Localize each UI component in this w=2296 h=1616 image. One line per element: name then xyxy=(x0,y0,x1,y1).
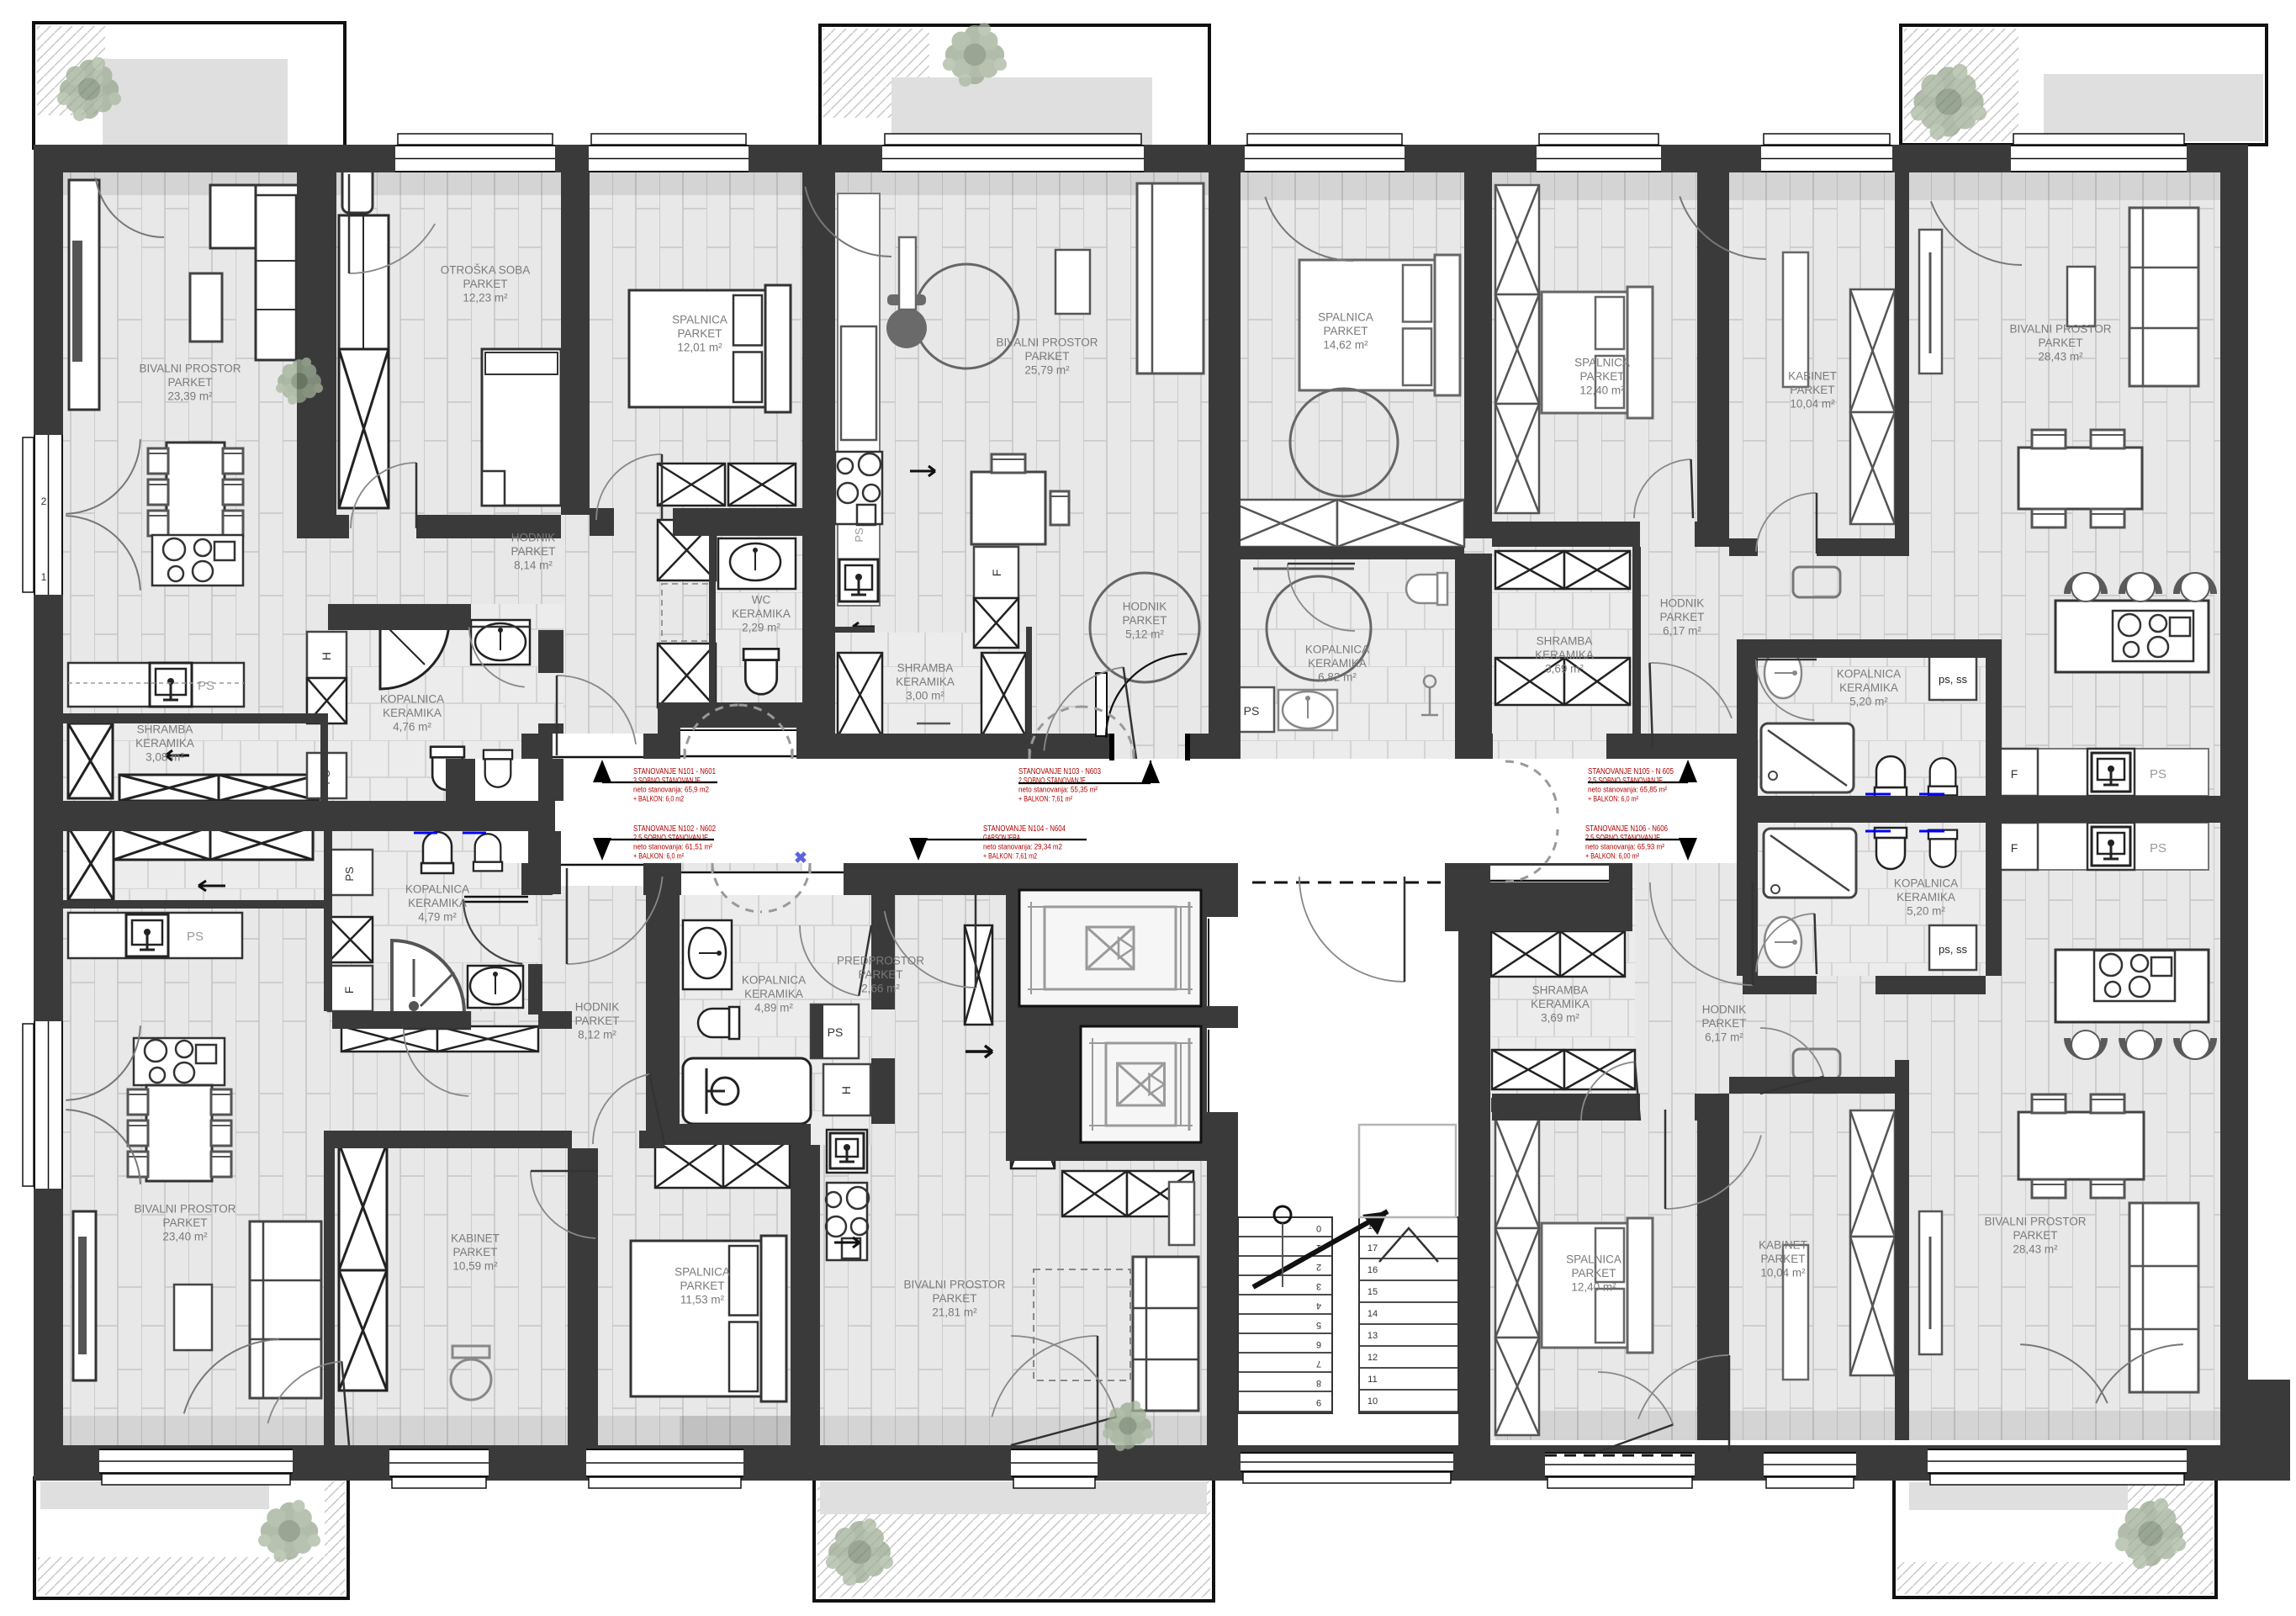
svg-text:PS: PS xyxy=(187,930,204,944)
svg-text:PARKET: PARKET xyxy=(1122,614,1167,627)
svg-text:3,69 m²: 3,69 m² xyxy=(1541,1012,1579,1025)
svg-text:PS: PS xyxy=(343,866,356,882)
svg-text:+ BALKON: 7,61 m2: + BALKON: 7,61 m2 xyxy=(983,851,1037,860)
svg-text:0: 0 xyxy=(1316,1223,1321,1233)
svg-text:PARKET: PARKET xyxy=(167,376,212,389)
svg-text:3,00 m²: 3,00 m² xyxy=(906,690,944,702)
svg-text:H: H xyxy=(839,1086,853,1094)
svg-text:10,59 m²: 10,59 m² xyxy=(452,1260,498,1273)
svg-text:+ BALKON: 6,0 m²: + BALKON: 6,0 m² xyxy=(633,851,684,860)
svg-text:2,66 m²: 2,66 m² xyxy=(861,983,900,995)
svg-text:3,08 m²: 3,08 m² xyxy=(145,751,184,764)
svg-text:BIVALNI PROSTOR: BIVALNI PROSTOR xyxy=(139,363,241,375)
svg-text:PS: PS xyxy=(2150,767,2166,782)
svg-text:16: 16 xyxy=(1368,1265,1378,1275)
svg-text:10,04 m²: 10,04 m² xyxy=(1760,1267,1806,1280)
svg-text:neto stanovanja: 55,35 m²: neto stanovanja: 55,35 m² xyxy=(1018,786,1098,794)
svg-text:8,12 m²: 8,12 m² xyxy=(578,1029,616,1041)
svg-text:6: 6 xyxy=(1316,1339,1321,1349)
svg-text:28,43 m²: 28,43 m² xyxy=(2013,1243,2058,1256)
svg-text:PS: PS xyxy=(853,527,865,543)
svg-text:12,40 m²: 12,40 m² xyxy=(1579,384,1625,397)
svg-text:+ BALKON: 6,0 m2: + BALKON: 6,0 m2 xyxy=(633,794,684,803)
svg-text:PARKET: PARKET xyxy=(858,968,902,981)
svg-text:neto stanovanja: 61,51 m²: neto stanovanja: 61,51 m² xyxy=(633,843,712,851)
svg-text:9: 9 xyxy=(1316,1397,1321,1407)
svg-text:17: 17 xyxy=(1368,1243,1378,1253)
svg-text:2: 2 xyxy=(41,495,47,507)
svg-text:2,5 SOBNO STANOVANJE: 2,5 SOBNO STANOVANJE xyxy=(1585,833,1660,843)
svg-text:F: F xyxy=(990,570,1003,577)
svg-text:7: 7 xyxy=(1316,1359,1321,1369)
svg-text:KERAMIKA: KERAMIKA xyxy=(1308,657,1367,670)
svg-text:PARKET: PARKET xyxy=(1579,370,1624,383)
svg-text:8,14 m²: 8,14 m² xyxy=(514,559,553,572)
svg-text:KERAMIKA: KERAMIKA xyxy=(135,737,194,750)
svg-text:SPALNICA: SPALNICA xyxy=(1318,311,1373,324)
svg-text:28,43 m²: 28,43 m² xyxy=(2038,351,2083,363)
svg-text:ps, ss: ps, ss xyxy=(1939,943,1967,956)
svg-text:PARKET: PARKET xyxy=(1323,325,1368,337)
svg-text:HODNIK: HODNIK xyxy=(1702,1004,1747,1016)
svg-text:SPALNICA: SPALNICA xyxy=(672,314,727,326)
svg-text:KERAMIKA: KERAMIKA xyxy=(1535,649,1594,661)
svg-text:ps, ss: ps, ss xyxy=(1939,673,1967,686)
svg-text:+ BALKON: 6,00 m²: + BALKON: 6,00 m² xyxy=(1585,851,1639,860)
svg-text:PARKET: PARKET xyxy=(162,1216,207,1229)
svg-text:5,12 m²: 5,12 m² xyxy=(1125,628,1164,641)
svg-text:GARSONJERA: GARSONJERA xyxy=(983,833,1020,843)
svg-text:KOPALNICA: KOPALNICA xyxy=(1305,644,1369,656)
svg-text:23,39 m²: 23,39 m² xyxy=(167,390,213,403)
svg-text:25,79 m²: 25,79 m² xyxy=(1024,364,1070,377)
svg-text:3 SOBNO STANOVANJE: 3 SOBNO STANOVANJE xyxy=(633,776,701,786)
svg-text:BIVALNI PROSTOR: BIVALNI PROSTOR xyxy=(1984,1216,2086,1228)
svg-text:KOPALNICA: KOPALNICA xyxy=(1894,877,1958,890)
svg-text:3,69 m²: 3,69 m² xyxy=(1545,663,1584,676)
svg-text:F: F xyxy=(2011,767,2018,781)
svg-text:5: 5 xyxy=(1316,1320,1321,1330)
svg-text:SHRAMBA: SHRAMBA xyxy=(137,723,193,736)
svg-text:KOPALNICA: KOPALNICA xyxy=(405,883,469,896)
svg-text:12,01 m²: 12,01 m² xyxy=(677,342,722,354)
svg-text:+ BALKON: 6,0 m²: + BALKON: 6,0 m² xyxy=(1588,794,1638,803)
svg-text:KERAMIKA: KERAMIKA xyxy=(744,988,803,1000)
svg-text:PS: PS xyxy=(2150,841,2166,856)
svg-text:HODNIK: HODNIK xyxy=(1660,597,1705,610)
svg-text:KOPALNICA: KOPALNICA xyxy=(380,693,444,706)
svg-text:neto stanovanja: 29,34 m2: neto stanovanja: 29,34 m2 xyxy=(983,843,1062,851)
svg-text:HODNIK: HODNIK xyxy=(575,1001,620,1014)
svg-text:23,40 m²: 23,40 m² xyxy=(162,1231,208,1243)
svg-text:8: 8 xyxy=(1316,1378,1321,1388)
svg-text:12,40 m²: 12,40 m² xyxy=(1571,1281,1616,1294)
svg-text:✖: ✖ xyxy=(794,850,807,867)
svg-text:PARKET: PARKET xyxy=(1701,1017,1746,1030)
svg-text:14: 14 xyxy=(1368,1309,1378,1319)
svg-text:4,89 m²: 4,89 m² xyxy=(754,1002,793,1015)
svg-text:KERAMIKA: KERAMIKA xyxy=(896,676,955,688)
svg-text:PS: PS xyxy=(198,679,214,693)
svg-text:KERAMIKA: KERAMIKA xyxy=(1839,681,1898,694)
svg-text:2,29 m²: 2,29 m² xyxy=(742,622,780,634)
svg-text:BIVALNI PROSTOR: BIVALNI PROSTOR xyxy=(134,1203,235,1216)
svg-text:PARKET: PARKET xyxy=(1659,611,1704,623)
svg-text:neto stanovanja: 65,93 m²: neto stanovanja: 65,93 m² xyxy=(1585,843,1664,851)
svg-text:2,5 SOBNO STANOVANJE: 2,5 SOBNO STANOVANJE xyxy=(633,833,708,843)
svg-text:PARKET: PARKET xyxy=(574,1015,619,1027)
svg-text:PARKET: PARKET xyxy=(511,545,555,558)
svg-text:15: 15 xyxy=(1368,1287,1378,1297)
svg-text:11: 11 xyxy=(1368,1375,1377,1385)
svg-text:1: 1 xyxy=(41,571,47,583)
svg-text:neto stanovanja: 65,9 m2: neto stanovanja: 65,9 m2 xyxy=(633,786,709,794)
svg-text:21,81 m²: 21,81 m² xyxy=(932,1306,977,1319)
svg-text:WC: WC xyxy=(752,594,771,607)
svg-text:KERAMIKA: KERAMIKA xyxy=(383,707,442,719)
svg-text:neto stanovanja: 65,85 m²: neto stanovanja: 65,85 m² xyxy=(1588,786,1667,794)
svg-text:KOPALNICA: KOPALNICA xyxy=(742,974,806,987)
svg-text:10,04 m²: 10,04 m² xyxy=(1790,398,1835,411)
svg-text:PARKET: PARKET xyxy=(932,1292,976,1305)
svg-text:F: F xyxy=(2011,841,2018,855)
svg-text:12,23 m²: 12,23 m² xyxy=(463,292,508,305)
svg-text:6,17 m²: 6,17 m² xyxy=(1663,625,1701,638)
svg-text:PARKET: PARKET xyxy=(463,278,507,290)
svg-text:SPALNICA: SPALNICA xyxy=(1566,1253,1621,1266)
svg-text:PARKET: PARKET xyxy=(2038,336,2082,349)
svg-text:SHRAMBA: SHRAMBA xyxy=(1532,984,1589,997)
svg-text:PARKET: PARKET xyxy=(677,327,722,340)
svg-text:HODNIK: HODNIK xyxy=(1123,601,1167,613)
svg-text:BIVALNI PROSTOR: BIVALNI PROSTOR xyxy=(2009,323,2111,336)
svg-text:PS: PS xyxy=(1244,704,1260,718)
svg-text:2,5 SOBNO STANOVANJE: 2,5 SOBNO STANOVANJE xyxy=(1588,776,1663,786)
svg-text:KOPALNICA: KOPALNICA xyxy=(1837,668,1901,681)
svg-text:F: F xyxy=(342,987,356,994)
svg-text:PARKET: PARKET xyxy=(1571,1267,1616,1280)
svg-text:SPALNICA: SPALNICA xyxy=(1574,357,1630,369)
svg-text:6,82 m²: 6,82 m² xyxy=(1318,671,1357,684)
svg-text:BIVALNI PROSTOR: BIVALNI PROSTOR xyxy=(903,1279,1005,1291)
svg-text:PARKET: PARKET xyxy=(1760,1253,1805,1265)
svg-text:11,53 m²: 11,53 m² xyxy=(680,1294,725,1306)
svg-text:5,20 m²: 5,20 m² xyxy=(1849,696,1888,708)
svg-text:4,79 m²: 4,79 m² xyxy=(418,911,457,924)
svg-text:PARKET: PARKET xyxy=(1790,384,1834,396)
svg-text:PARKET: PARKET xyxy=(680,1280,724,1292)
svg-text:SHRAMBA: SHRAMBA xyxy=(1537,635,1593,648)
svg-text:KABINET: KABINET xyxy=(451,1232,500,1245)
svg-text:SHRAMBA: SHRAMBA xyxy=(897,662,954,675)
svg-text:6,17 m²: 6,17 m² xyxy=(1705,1031,1743,1044)
svg-text:PARKET: PARKET xyxy=(1024,350,1069,363)
svg-text:4,76 m²: 4,76 m² xyxy=(393,721,431,734)
svg-text:PREDPROSTOR: PREDPROSTOR xyxy=(837,955,924,967)
svg-text:2: 2 xyxy=(1316,1262,1321,1272)
svg-text:HODNIK: HODNIK xyxy=(511,532,556,544)
svg-text:3: 3 xyxy=(1316,1281,1321,1291)
svg-text:PARKET: PARKET xyxy=(452,1246,497,1258)
svg-text:4: 4 xyxy=(1316,1301,1321,1311)
svg-text:KERAMIKA: KERAMIKA xyxy=(732,607,791,620)
svg-text:BIVALNI PROSTOR: BIVALNI PROSTOR xyxy=(996,336,1098,349)
svg-text:14,62 m²: 14,62 m² xyxy=(1323,339,1368,352)
svg-text:SPALNICA: SPALNICA xyxy=(675,1266,730,1279)
svg-text:KERAMIKA: KERAMIKA xyxy=(1897,891,1955,903)
svg-text:OTROŠKA SOBA: OTROŠKA SOBA xyxy=(441,264,531,277)
svg-text:10: 10 xyxy=(1368,1396,1378,1407)
svg-text:KABINET: KABINET xyxy=(1759,1239,1807,1252)
svg-text:5,20 m²: 5,20 m² xyxy=(1907,905,1945,918)
svg-text:KABINET: KABINET xyxy=(1788,370,1837,383)
svg-text:PARKET: PARKET xyxy=(2013,1229,2057,1242)
svg-text:12: 12 xyxy=(1368,1353,1378,1363)
svg-text:KERAMIKA: KERAMIKA xyxy=(408,897,467,909)
svg-text:+ BALKON: 7,61 m²: + BALKON: 7,61 m² xyxy=(1018,794,1072,803)
svg-text:13: 13 xyxy=(1368,1331,1378,1341)
svg-text:H: H xyxy=(320,652,333,660)
svg-text:KERAMIKA: KERAMIKA xyxy=(1531,998,1590,1010)
svg-text:PS: PS xyxy=(828,1025,844,1039)
